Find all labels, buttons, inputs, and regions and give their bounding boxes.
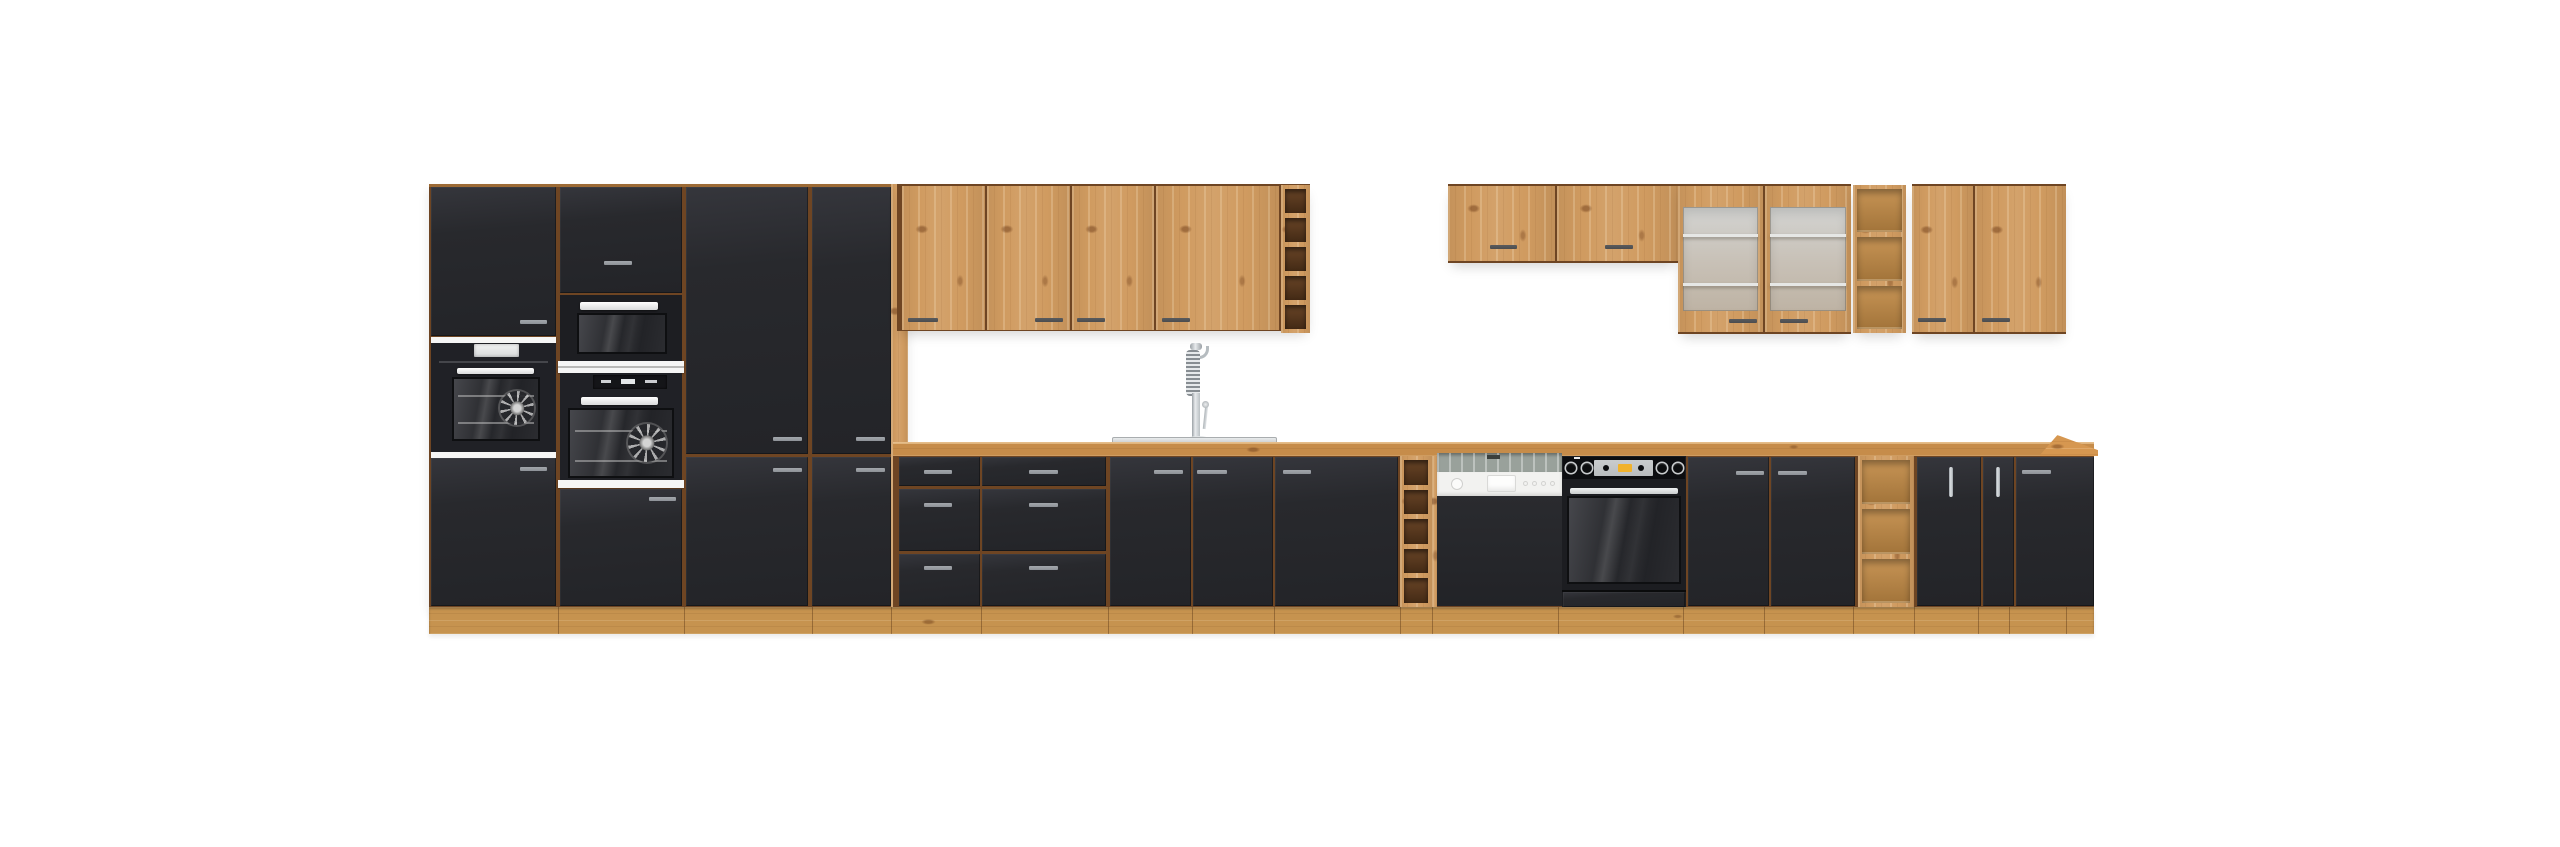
tall-door-col1-top — [431, 187, 556, 336]
built-in-oven-2 — [560, 373, 682, 480]
oven2-door-glass — [568, 408, 674, 478]
base-cabinet-door-r2-handle — [1778, 471, 1807, 475]
oven2-display-segment-3 — [645, 380, 657, 383]
plinth-seam — [1558, 607, 1559, 634]
tall-door-col1-top-handle — [520, 320, 547, 324]
oven1-fan-hub — [510, 401, 524, 415]
plinth-seam — [1400, 607, 1401, 634]
tall-door-col4-top — [812, 187, 891, 454]
upper-wine-rack — [1281, 185, 1310, 333]
glass-shelf-2a — [1770, 234, 1846, 237]
open-shelf-cubby — [1862, 509, 1910, 553]
upper-right-short-door-2-handle — [1605, 245, 1633, 249]
glass-display-door-1-handle — [1729, 319, 1757, 323]
compact-oven-glass — [577, 313, 667, 354]
oven2-fan-icon — [628, 424, 666, 462]
upper-left-door-1-handle — [908, 318, 938, 322]
dishwasher-button-3 — [1541, 481, 1546, 486]
plinth-seam — [684, 607, 685, 634]
oven-door-handle — [1570, 488, 1678, 494]
base-door-1-vertical-handle — [1949, 467, 1953, 497]
oven-display-panel — [1594, 460, 1653, 476]
oven-control-panel — [1563, 457, 1685, 479]
dishwasher-control-fascia — [1437, 472, 1562, 496]
oven-door-glass — [1567, 496, 1681, 584]
upper-right-tall-door-2-handle — [1982, 318, 2010, 322]
plinth-seam — [1432, 607, 1433, 634]
drawer-b3-handle — [1029, 566, 1058, 570]
base-cabinet-door-r1 — [1688, 457, 1769, 606]
upper-right-tall-door-1-handle — [1918, 318, 1946, 322]
drawer-a3 — [899, 554, 980, 606]
tall-door-col3-top — [686, 187, 808, 454]
oven-display-dot-right — [1638, 465, 1644, 471]
oven2-clock-display — [593, 375, 667, 389]
open-shelf-cubby — [1862, 460, 1910, 504]
oven-knob-4 — [1673, 463, 1683, 473]
tall-door-col4-bottom — [812, 457, 891, 606]
tall-door-col3-bottom-handle — [773, 468, 802, 472]
oven-display-amber-readout — [1618, 464, 1632, 472]
tall-door-col2-top — [560, 187, 682, 293]
oven2-trim-top — [558, 361, 684, 373]
upper-left-door-2 — [987, 186, 1070, 330]
oven1-display — [474, 344, 519, 357]
dishwasher-tub-band — [1437, 453, 1562, 472]
tall-door-col2-bottom-handle — [649, 497, 676, 501]
oven1-control-strip — [439, 361, 548, 363]
base-door-wide-end-handle — [2022, 470, 2051, 474]
dishwasher-power-button — [1451, 478, 1463, 490]
sink-door-2-handle — [1197, 470, 1227, 474]
base-cabinet-door-r2 — [1771, 457, 1855, 606]
oven2-fan-hub — [639, 435, 654, 450]
drawer-b2 — [982, 489, 1106, 551]
glass-display-window-1 — [1683, 207, 1758, 311]
dishwasher — [1437, 453, 1562, 606]
plinth-seam — [1108, 607, 1109, 634]
tall-door-col3-bottom — [686, 457, 808, 606]
plinth-seam — [891, 607, 892, 634]
open-shelf-cubby — [1862, 559, 1910, 603]
oven2-trim-bottom — [558, 480, 684, 488]
oven-knob-1 — [1566, 463, 1576, 473]
oven-display-dot-left — [1603, 465, 1609, 471]
plinth-seam — [2009, 607, 2010, 634]
tall-door-col4-bottom-handle — [856, 468, 885, 472]
upper-right-short-door-2 — [1557, 186, 1678, 261]
plinth-seam — [1978, 607, 1979, 634]
drawer-a2 — [899, 489, 980, 551]
base-wide-door-1 — [1275, 457, 1398, 606]
oven2-display-segment-2 — [621, 379, 635, 384]
upper-left-door-1 — [902, 186, 985, 330]
tall-door-col2-bottom — [560, 489, 682, 606]
base-wine-rack — [1400, 456, 1432, 607]
wine-rack-cubby — [1404, 490, 1428, 515]
base-open-shelf-unit — [1858, 456, 1914, 607]
drawer-b1-handle — [1029, 470, 1058, 474]
upper-right-tall-door-1 — [1912, 186, 1973, 332]
wine-rack-cubby — [1404, 460, 1428, 485]
plinth-seam — [2066, 607, 2067, 634]
product-photo-canvas — [0, 0, 2560, 847]
compact-oven-reflection — [579, 315, 665, 352]
oven-base-drawer — [1563, 592, 1685, 607]
faucet-spring-coil — [1186, 350, 1200, 396]
oven-knob-3 — [1657, 463, 1667, 473]
plinth-seam — [1853, 607, 1854, 634]
upper-open-shelf-unit — [1853, 185, 1906, 333]
oven-door-reflection — [1569, 498, 1679, 582]
dishwasher-front-panel — [1437, 496, 1562, 606]
glass-shelf-2b — [1770, 283, 1846, 286]
drawer-a1-handle — [924, 470, 952, 474]
wine-rack-cubby — [1285, 218, 1306, 242]
glass-shelf-1b — [1683, 283, 1758, 286]
base-cabinet-door-r1-handle — [1736, 471, 1764, 475]
open-shelf-cubby — [1857, 189, 1902, 232]
plinth-seam — [1764, 607, 1765, 634]
built-in-oven-1 — [431, 343, 556, 452]
sink-cabinet-door-2 — [1193, 457, 1273, 606]
faucet — [1180, 343, 1220, 443]
compact-oven — [560, 295, 682, 361]
upper-left-door-2-handle — [1035, 318, 1063, 322]
upper-left-door-4 — [1156, 186, 1279, 330]
plinth-seam — [1192, 607, 1193, 634]
dishwasher-door-grip — [1487, 475, 1516, 492]
upper-left-door-3 — [1072, 186, 1154, 330]
plinth-seam — [1683, 607, 1684, 634]
plinth-seam — [1274, 607, 1275, 634]
wine-rack-cubby — [1404, 519, 1428, 544]
dishwasher-button-2 — [1532, 481, 1537, 486]
wine-rack-cubby — [1404, 549, 1428, 574]
wine-rack-cubby — [1285, 305, 1306, 329]
base-door-wide-end — [2016, 457, 2094, 606]
oven1-door-glass — [452, 377, 540, 441]
upper-right-short-door-1 — [1448, 186, 1555, 261]
tall-door-col2-top-handle — [604, 261, 632, 265]
oven-housing — [1562, 456, 1686, 608]
drawer-a3-handle — [924, 566, 952, 570]
drawer-b2-handle — [1029, 503, 1058, 507]
glass-shelf-1a — [1683, 234, 1758, 237]
sink-cabinet-door-1 — [1110, 457, 1191, 606]
base-wide-door-1-handle — [1283, 470, 1311, 474]
glass-display-window-2 — [1770, 207, 1846, 311]
oven1-fan-icon — [500, 391, 534, 425]
oven1-handle — [457, 368, 534, 374]
upper-left-door-3-handle — [1077, 318, 1105, 322]
faucet-body — [1192, 393, 1200, 438]
oven-panel-tick — [1574, 457, 1580, 459]
base-door-2-vertical-handle — [1996, 467, 2000, 497]
plinth-seam — [1914, 607, 1915, 634]
tall-door-col4-top-handle — [856, 437, 885, 441]
plinth-seam — [812, 607, 813, 634]
plinth — [429, 607, 2094, 634]
dishwasher-rack-bar — [1487, 455, 1500, 459]
oven2-trim-groove — [558, 366, 684, 368]
sink-door-1-handle — [1154, 470, 1183, 474]
plinth-seam — [558, 607, 559, 634]
dishwasher-button-1 — [1523, 481, 1528, 486]
open-shelf-cubby — [1857, 286, 1902, 329]
open-shelf-cubby — [1857, 237, 1902, 280]
compact-oven-handle — [580, 302, 658, 310]
oven2-handle — [581, 397, 658, 405]
oven2-display-segment-1 — [601, 380, 611, 383]
tall-door-col1-bottom — [431, 458, 556, 606]
wine-rack-cubby — [1285, 247, 1306, 271]
wine-rack-cubby — [1285, 189, 1306, 213]
upper-right-tall-door-2 — [1975, 186, 2066, 332]
glass-display-door-2-handle — [1780, 319, 1808, 323]
drawer-b3 — [982, 554, 1106, 606]
dishwasher-button-4 — [1550, 481, 1555, 486]
oven-knob-2 — [1582, 463, 1592, 473]
upper-left-door-4-handle — [1162, 318, 1190, 322]
plinth-seam — [981, 607, 982, 634]
wine-rack-cubby — [1404, 578, 1428, 603]
upper-right-short-door-1-handle — [1490, 245, 1517, 249]
faucet-lever-knob — [1202, 401, 1209, 408]
faucet-lever — [1203, 405, 1208, 429]
tall-door-col1-bottom-handle — [520, 467, 547, 471]
wine-rack-cubby — [1285, 276, 1306, 300]
drawer-a2-handle — [924, 503, 952, 507]
tall-door-col3-top-handle — [773, 437, 802, 441]
